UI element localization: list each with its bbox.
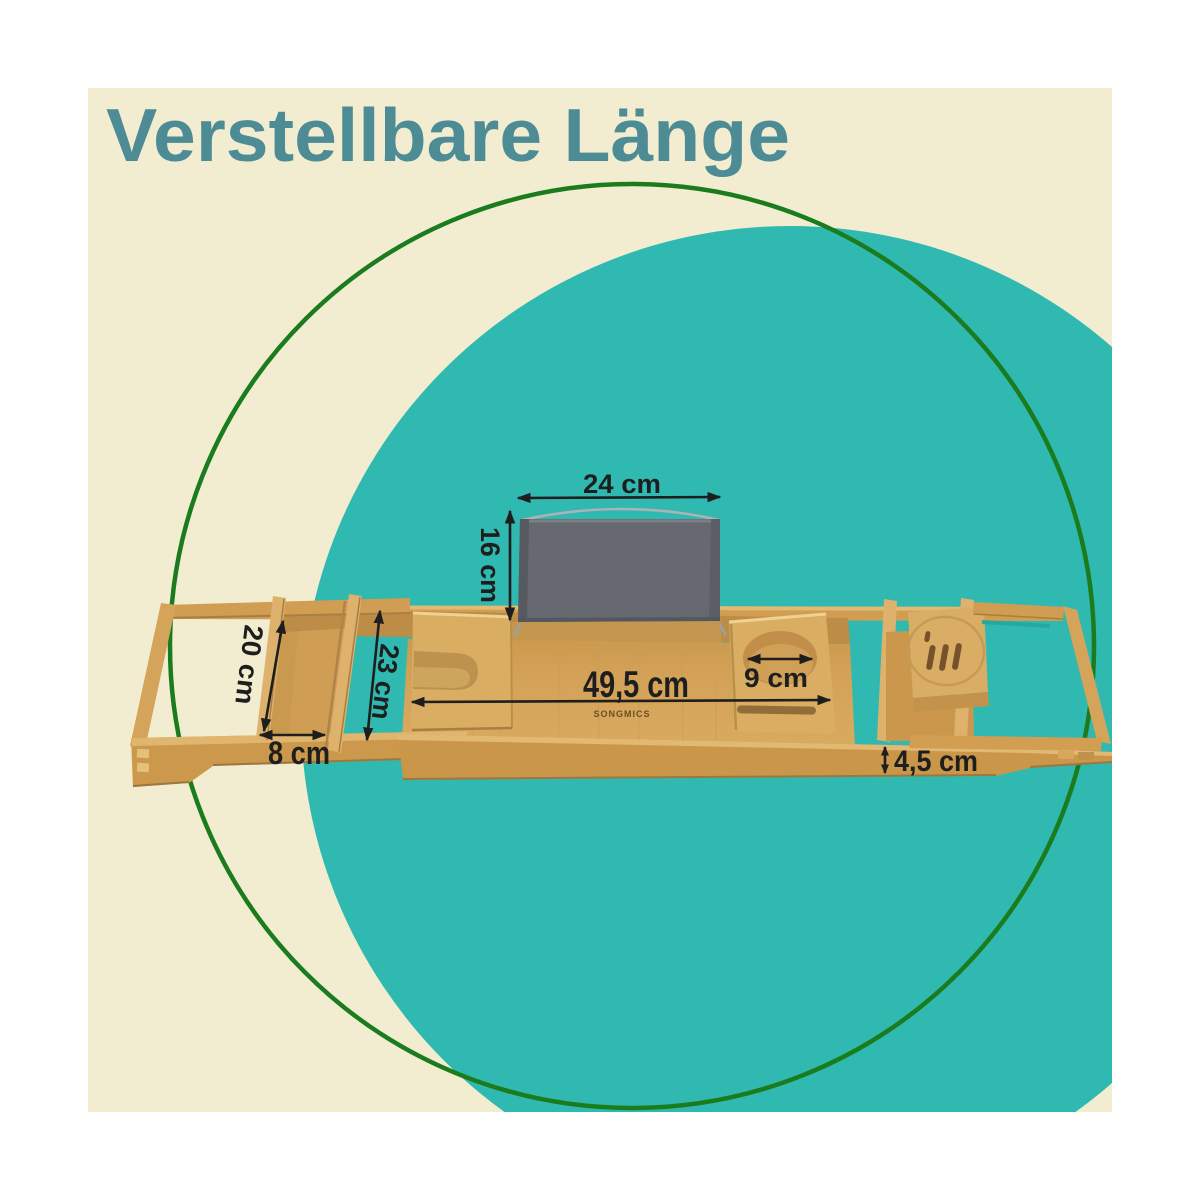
svg-text:16 cm: 16 cm <box>475 527 505 603</box>
svg-text:4,5 cm: 4,5 cm <box>894 745 978 778</box>
svg-text:8 cm: 8 cm <box>268 735 330 771</box>
svg-text:SONGMICS: SONGMICS <box>593 709 650 719</box>
svg-text:9 cm: 9 cm <box>744 663 808 693</box>
svg-text:49,5 cm: 49,5 cm <box>583 664 689 705</box>
svg-text:24 cm: 24 cm <box>583 469 661 499</box>
svg-text:Verstellbare Länge: Verstellbare Länge <box>106 93 790 177</box>
